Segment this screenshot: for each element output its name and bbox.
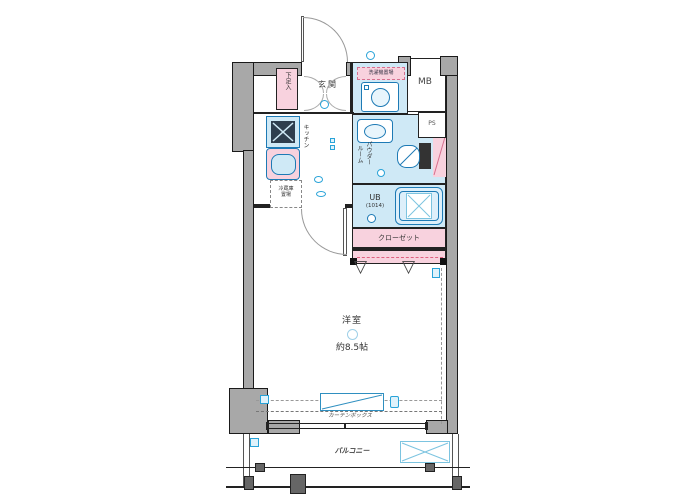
- window-end-post: [266, 422, 269, 430]
- window-sill-inner: [268, 428, 427, 429]
- beam-line-vertical: [441, 268, 442, 424]
- room-light-icon: [347, 329, 358, 340]
- doorbell-icon: [366, 51, 375, 60]
- genkan-light-icon: [320, 100, 329, 109]
- shoe-box: 下足入: [276, 68, 298, 110]
- wall-right: [446, 74, 458, 434]
- closet-utility-icon: [432, 268, 440, 278]
- partition-washer-left: [350, 62, 352, 114]
- curtain-box-label: カーテンボックス: [300, 413, 400, 419]
- closet-swing-triangle-icon: ▽: [354, 258, 367, 278]
- powder-room-label-line2: ルーム: [356, 145, 362, 163]
- kitchen-label: キッチン: [302, 124, 308, 148]
- partition-genkan: [254, 112, 354, 114]
- stove-icon: [266, 116, 300, 148]
- washer-space-label: 洗濯機置場: [358, 71, 404, 77]
- pipe-space-label: PS: [419, 121, 445, 128]
- room-size-label: 約8.5帖: [312, 343, 392, 353]
- unit-bath-size-label: (1014): [359, 203, 391, 209]
- toilet-partition: [433, 135, 446, 177]
- wall-mb-right-pillar: [440, 56, 458, 76]
- balcony-label: バルコニー: [320, 447, 384, 455]
- window-mullion: [344, 423, 346, 429]
- washer-label-strip: 洗濯機置場: [357, 67, 405, 80]
- washing-machine-icon: [361, 82, 399, 112]
- toilet-slash: [398, 146, 419, 167]
- powder-light-icon: [377, 169, 385, 177]
- closet-end-cap: [440, 258, 447, 265]
- room-label: 洋室: [312, 316, 392, 326]
- switch-icon: [330, 145, 335, 150]
- railing-post: [244, 476, 254, 490]
- wall-bottom-right-block: [426, 420, 448, 434]
- meter-box-label: MB: [405, 77, 445, 87]
- beam-end-icon: [260, 395, 269, 404]
- vanity-sink-icon: [357, 119, 393, 143]
- bathtub-icon: [395, 187, 443, 225]
- shoe-cabinet-door-arc: [304, 76, 324, 93]
- entrance-door-swing-arc: [303, 17, 348, 62]
- shoe-cabinet-door-arc: [326, 76, 346, 93]
- sink-icon: [266, 148, 300, 180]
- ac-outlet-icon: [390, 396, 399, 408]
- hall-light-icon: [316, 191, 326, 197]
- partition-hatch: [433, 135, 446, 177]
- wall-left: [243, 150, 254, 395]
- stove-burner-x: [271, 121, 295, 143]
- fridge-label-line2: 置場: [281, 192, 291, 198]
- unit-bath: UB (1014): [352, 184, 446, 228]
- balcony-hatch-icon: [400, 441, 450, 463]
- railing-post: [452, 476, 462, 490]
- toilet-icon: [397, 145, 420, 168]
- window-sill-outer: [268, 423, 427, 424]
- closet-label: クローゼット: [353, 234, 445, 242]
- window-end-post: [425, 422, 428, 430]
- room-door-swing-arc: [301, 209, 347, 255]
- balcony-railing-bottom: [226, 486, 470, 488]
- curtain-box-line: [256, 411, 442, 412]
- closet-swing-triangle-icon: ▽: [402, 258, 415, 278]
- shoe-cabinet-door-arc: [326, 94, 346, 111]
- closet: クローゼット: [352, 228, 446, 248]
- fridge-space: 冷蔵庫置場: [270, 180, 302, 208]
- railing-post: [255, 463, 265, 472]
- floor-plan: MB 玄関 下足入 洗濯機置場 キッチン: [0, 0, 700, 500]
- bath-window-icon: [406, 193, 432, 219]
- toilet-tank: [419, 143, 431, 169]
- balcony-utility-icon: [250, 438, 259, 447]
- switch-icon: [330, 138, 335, 143]
- pipe-space: PS: [418, 112, 446, 138]
- ac-unit-symbol: [320, 393, 384, 411]
- hall-light-icon: [314, 176, 323, 183]
- railing-center-post: [290, 474, 306, 494]
- powder-room-label-line1: パウダー: [365, 141, 371, 165]
- wall-left-upper-column: [232, 62, 254, 152]
- shoe-box-label: 下足入: [284, 72, 290, 90]
- washer-closet: 洗濯機置場: [352, 62, 408, 114]
- closet-door-dash: [357, 257, 443, 258]
- unit-bath-label: UB: [363, 193, 387, 202]
- railing-post: [425, 463, 435, 472]
- room-label-block: 洋室 約8.5帖: [312, 316, 392, 354]
- bath-drain-icon: [367, 214, 376, 223]
